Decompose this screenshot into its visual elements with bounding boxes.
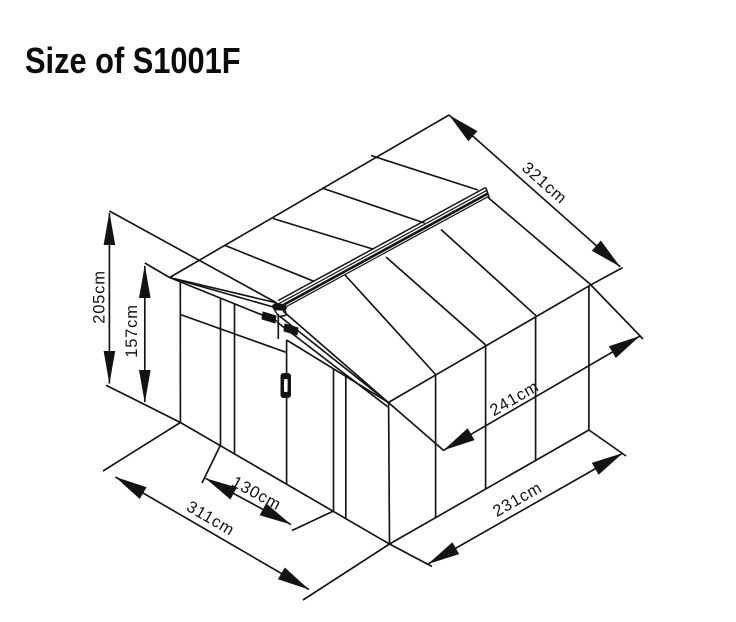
svg-text:205cm: 205cm <box>91 270 109 324</box>
svg-text:157cm: 157cm <box>123 304 141 358</box>
svg-text:231cm: 231cm <box>490 479 545 521</box>
svg-text:311cm: 311cm <box>183 498 237 540</box>
svg-text:130cm: 130cm <box>229 473 285 514</box>
